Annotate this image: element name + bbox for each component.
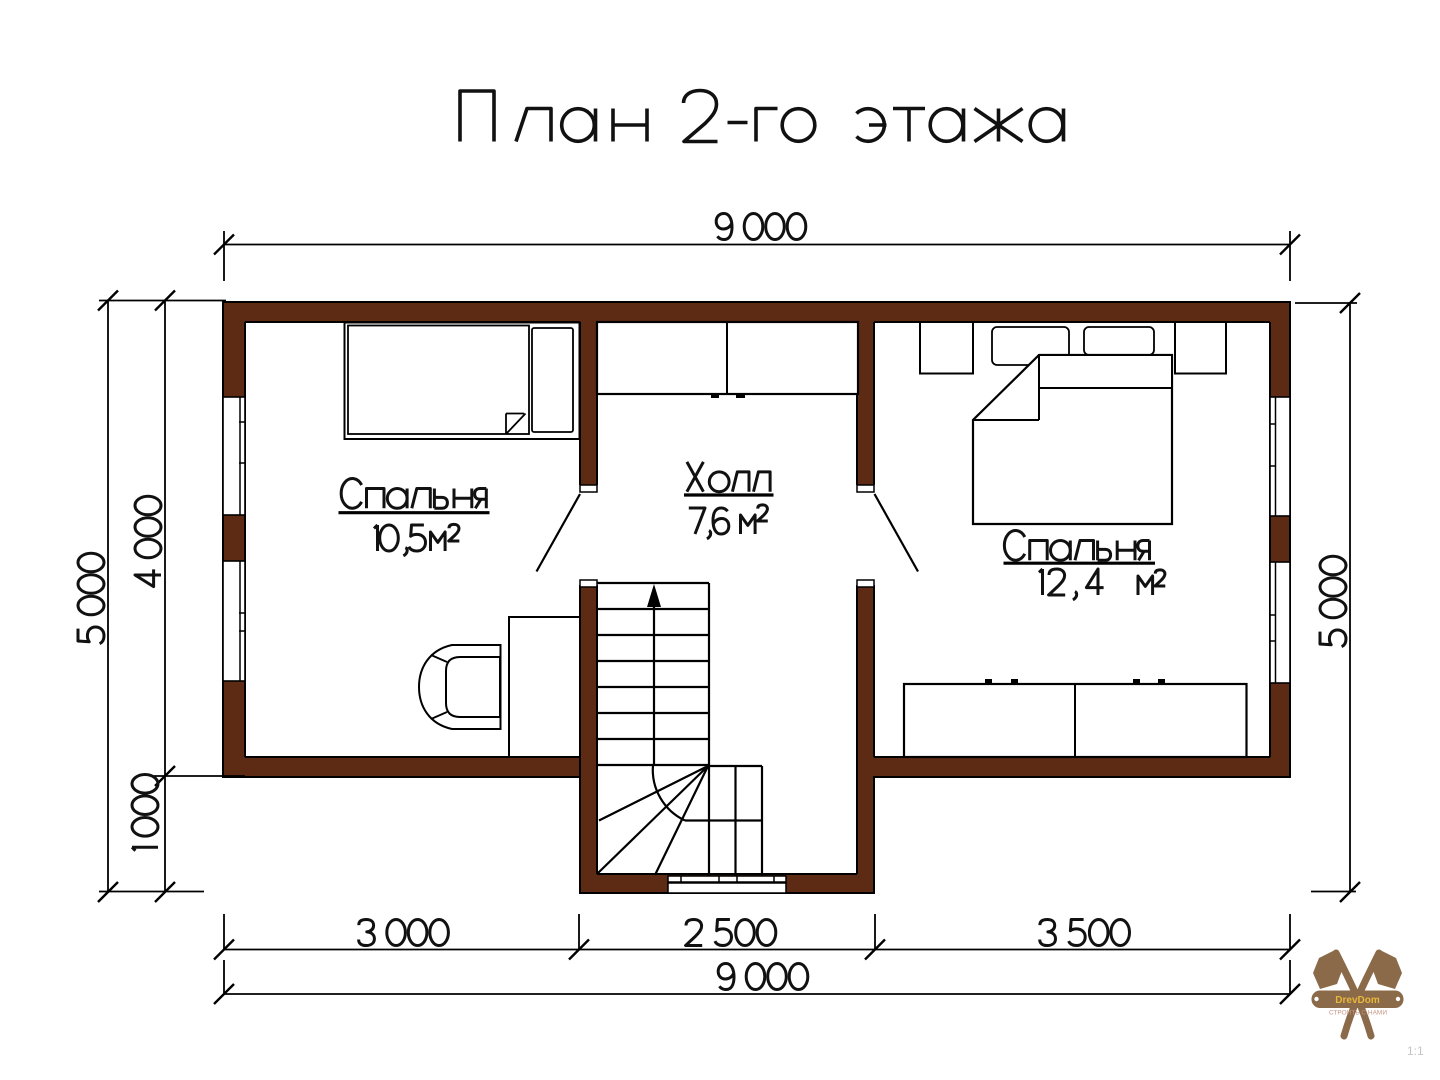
svg-text:1:1: 1:1 <box>1407 1044 1424 1058</box>
svg-text:СТРОИТЬ С НАМИ: СТРОИТЬ С НАМИ <box>1329 1010 1387 1017</box>
svg-text:DrevDom: DrevDom <box>1335 995 1380 1006</box>
